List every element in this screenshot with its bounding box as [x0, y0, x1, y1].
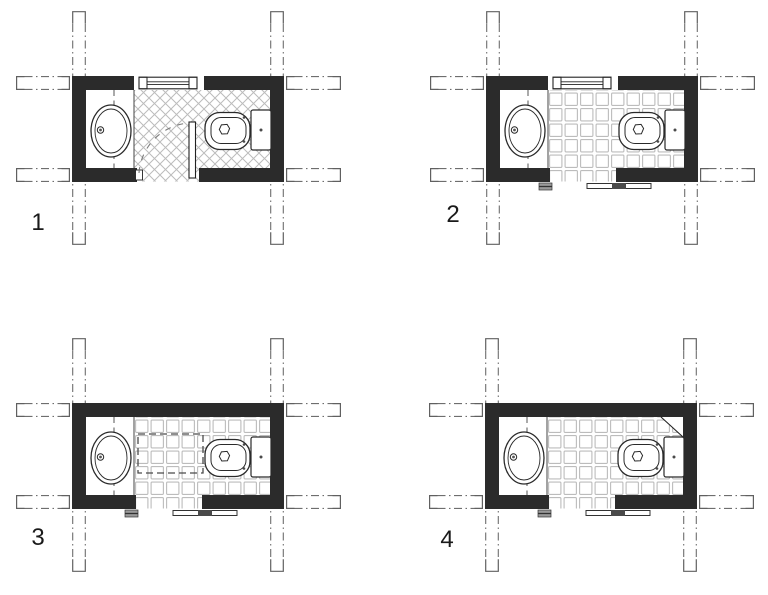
grid-strip-end-cap: [486, 559, 499, 571]
grid-strip-end-cap: [486, 339, 499, 351]
toilet: [618, 437, 684, 477]
grid-strip-horizontal-left: [17, 404, 70, 417]
grid-strip-end-cap: [333, 404, 341, 417]
grid-strip-end-cap: [685, 12, 698, 24]
toilet: [619, 110, 685, 150]
grid-strip-horizontal-left: [431, 77, 484, 90]
grid-strip-end-cap: [746, 496, 754, 509]
seat-hinge-dot: [657, 116, 660, 119]
grid-strip-end-cap: [701, 77, 709, 90]
grid-strip-end-cap: [73, 12, 86, 24]
bathroom-plan-3: 3: [17, 339, 341, 572]
grid-strip-end-cap: [475, 496, 483, 509]
grid-strip-end-cap: [684, 339, 697, 351]
grid-strip-end-cap: [73, 339, 86, 351]
grid-strip-end-cap: [287, 77, 295, 90]
grid-strip-end-cap: [62, 496, 70, 509]
window-frame: [553, 77, 611, 89]
grid-strip-horizontal-right: [700, 404, 754, 417]
cistern-button: [673, 456, 676, 459]
grid-strip-end-cap: [476, 169, 484, 182]
bathroom-plan-4: 4: [430, 339, 754, 572]
floor-plan-canvas: 1234: [0, 0, 768, 595]
tiled-threshold: [136, 495, 202, 509]
plan-label: 2: [446, 201, 459, 228]
grid-strip-end-cap: [271, 339, 284, 351]
window: [548, 76, 618, 90]
grid-strip-end-cap: [287, 496, 295, 509]
grid-strip-end-cap: [62, 404, 70, 417]
toilet-drain: [219, 451, 229, 461]
basin-drain-dot: [512, 456, 515, 459]
grid-strip-horizontal-left: [430, 496, 483, 509]
grid-strip-end-cap: [700, 404, 708, 417]
toilet: [205, 437, 271, 477]
grid-strip-horizontal-right: [287, 169, 341, 182]
grid-strip-end-cap: [747, 77, 755, 90]
toilet-drain: [632, 451, 642, 461]
seat-hinge-dot: [243, 116, 246, 119]
grid-strip-end-cap: [17, 496, 25, 509]
door-stop-bar: [125, 514, 138, 517]
grid-strip-end-cap: [487, 12, 500, 24]
cistern-button: [674, 129, 677, 132]
plan-label: 4: [440, 526, 453, 553]
grid-strip-end-cap: [271, 12, 284, 24]
basin-drain-dot: [513, 129, 516, 132]
grid-strip-end-cap: [62, 169, 70, 182]
washbasin: [91, 432, 131, 484]
seat-hinge-dot: [243, 467, 246, 470]
sliding-door-handle: [611, 510, 625, 516]
grid-strip-horizontal-left: [17, 169, 70, 182]
grid-strip-horizontal-right: [287, 77, 341, 90]
sliding-door: [539, 183, 651, 190]
grid-strip-horizontal-right: [700, 496, 754, 509]
grid-strip-end-cap: [287, 404, 295, 417]
toilet-drain: [633, 124, 643, 134]
sliding-door: [538, 510, 650, 517]
seat-hinge-dot: [243, 140, 246, 143]
grid-strip-horizontal-left: [430, 404, 483, 417]
grid-strip-end-cap: [73, 559, 86, 571]
grid-strip-horizontal-left: [431, 169, 484, 182]
grid-strip-end-cap: [333, 496, 341, 509]
seat-hinge-dot: [656, 443, 659, 446]
bathroom-plan-2: 2: [431, 12, 755, 245]
plan-label: 1: [31, 209, 44, 236]
grid-strip-end-cap: [746, 404, 754, 417]
seat-hinge-dot: [657, 140, 660, 143]
grid-strip-end-cap: [431, 77, 439, 90]
plan-label: 3: [31, 524, 44, 551]
grid-strip-end-cap: [73, 232, 86, 244]
sliding-door: [125, 510, 237, 517]
floor-plan-drawing: 1234: [0, 0, 768, 595]
grid-strip-end-cap: [747, 169, 755, 182]
grid-strip-end-cap: [685, 232, 698, 244]
door-stop-bar: [538, 514, 551, 517]
grid-strip-end-cap: [431, 169, 439, 182]
basin-drain-dot: [99, 456, 102, 459]
seat-hinge-dot: [656, 467, 659, 470]
grid-strip-end-cap: [701, 169, 709, 182]
washbasin: [505, 105, 545, 157]
grid-strip-end-cap: [430, 496, 438, 509]
grid-strip-end-cap: [700, 496, 708, 509]
grid-strip-end-cap: [287, 169, 295, 182]
grid-strip-end-cap: [17, 77, 25, 90]
grid-strip-horizontal-right: [701, 169, 755, 182]
basin-drain-dot: [99, 129, 102, 132]
bathroom-plan-1: 1: [17, 12, 341, 245]
grid-strip-end-cap: [476, 77, 484, 90]
grid-strip-horizontal-right: [287, 496, 341, 509]
sliding-door-handle: [198, 510, 212, 516]
washbasin: [91, 105, 131, 157]
grid-strip-end-cap: [17, 169, 25, 182]
grid-strip-end-cap: [430, 404, 438, 417]
grid-strip-end-cap: [475, 404, 483, 417]
window-frame: [139, 77, 197, 89]
cistern-button: [260, 129, 263, 132]
grid-strip-end-cap: [487, 232, 500, 244]
door-stop-bar: [125, 510, 138, 513]
cistern-button: [260, 456, 263, 459]
seat-hinge-dot: [243, 443, 246, 446]
grid-strip-end-cap: [333, 77, 341, 90]
door-stop-bar: [538, 510, 551, 513]
grid-strip-end-cap: [684, 559, 697, 571]
grid-strip-end-cap: [62, 77, 70, 90]
grid-strip-end-cap: [17, 404, 25, 417]
door-leaf: [189, 122, 196, 178]
window: [134, 76, 204, 90]
toilet: [205, 110, 271, 150]
grid-strip-end-cap: [271, 232, 284, 244]
grid-strip-horizontal-left: [17, 496, 70, 509]
grid-strip-horizontal-right: [701, 77, 755, 90]
grid-strip-end-cap: [271, 559, 284, 571]
sliding-door-handle: [612, 183, 626, 189]
tiled-threshold: [549, 495, 615, 509]
toilet-drain: [219, 124, 229, 134]
door-stop-bar: [539, 183, 552, 186]
grid-strip-end-cap: [333, 169, 341, 182]
washbasin: [504, 432, 544, 484]
grid-strip-horizontal-right: [287, 404, 341, 417]
door-stop-bar: [539, 187, 552, 190]
grid-strip-horizontal-left: [17, 77, 70, 90]
tiled-threshold: [550, 168, 616, 182]
